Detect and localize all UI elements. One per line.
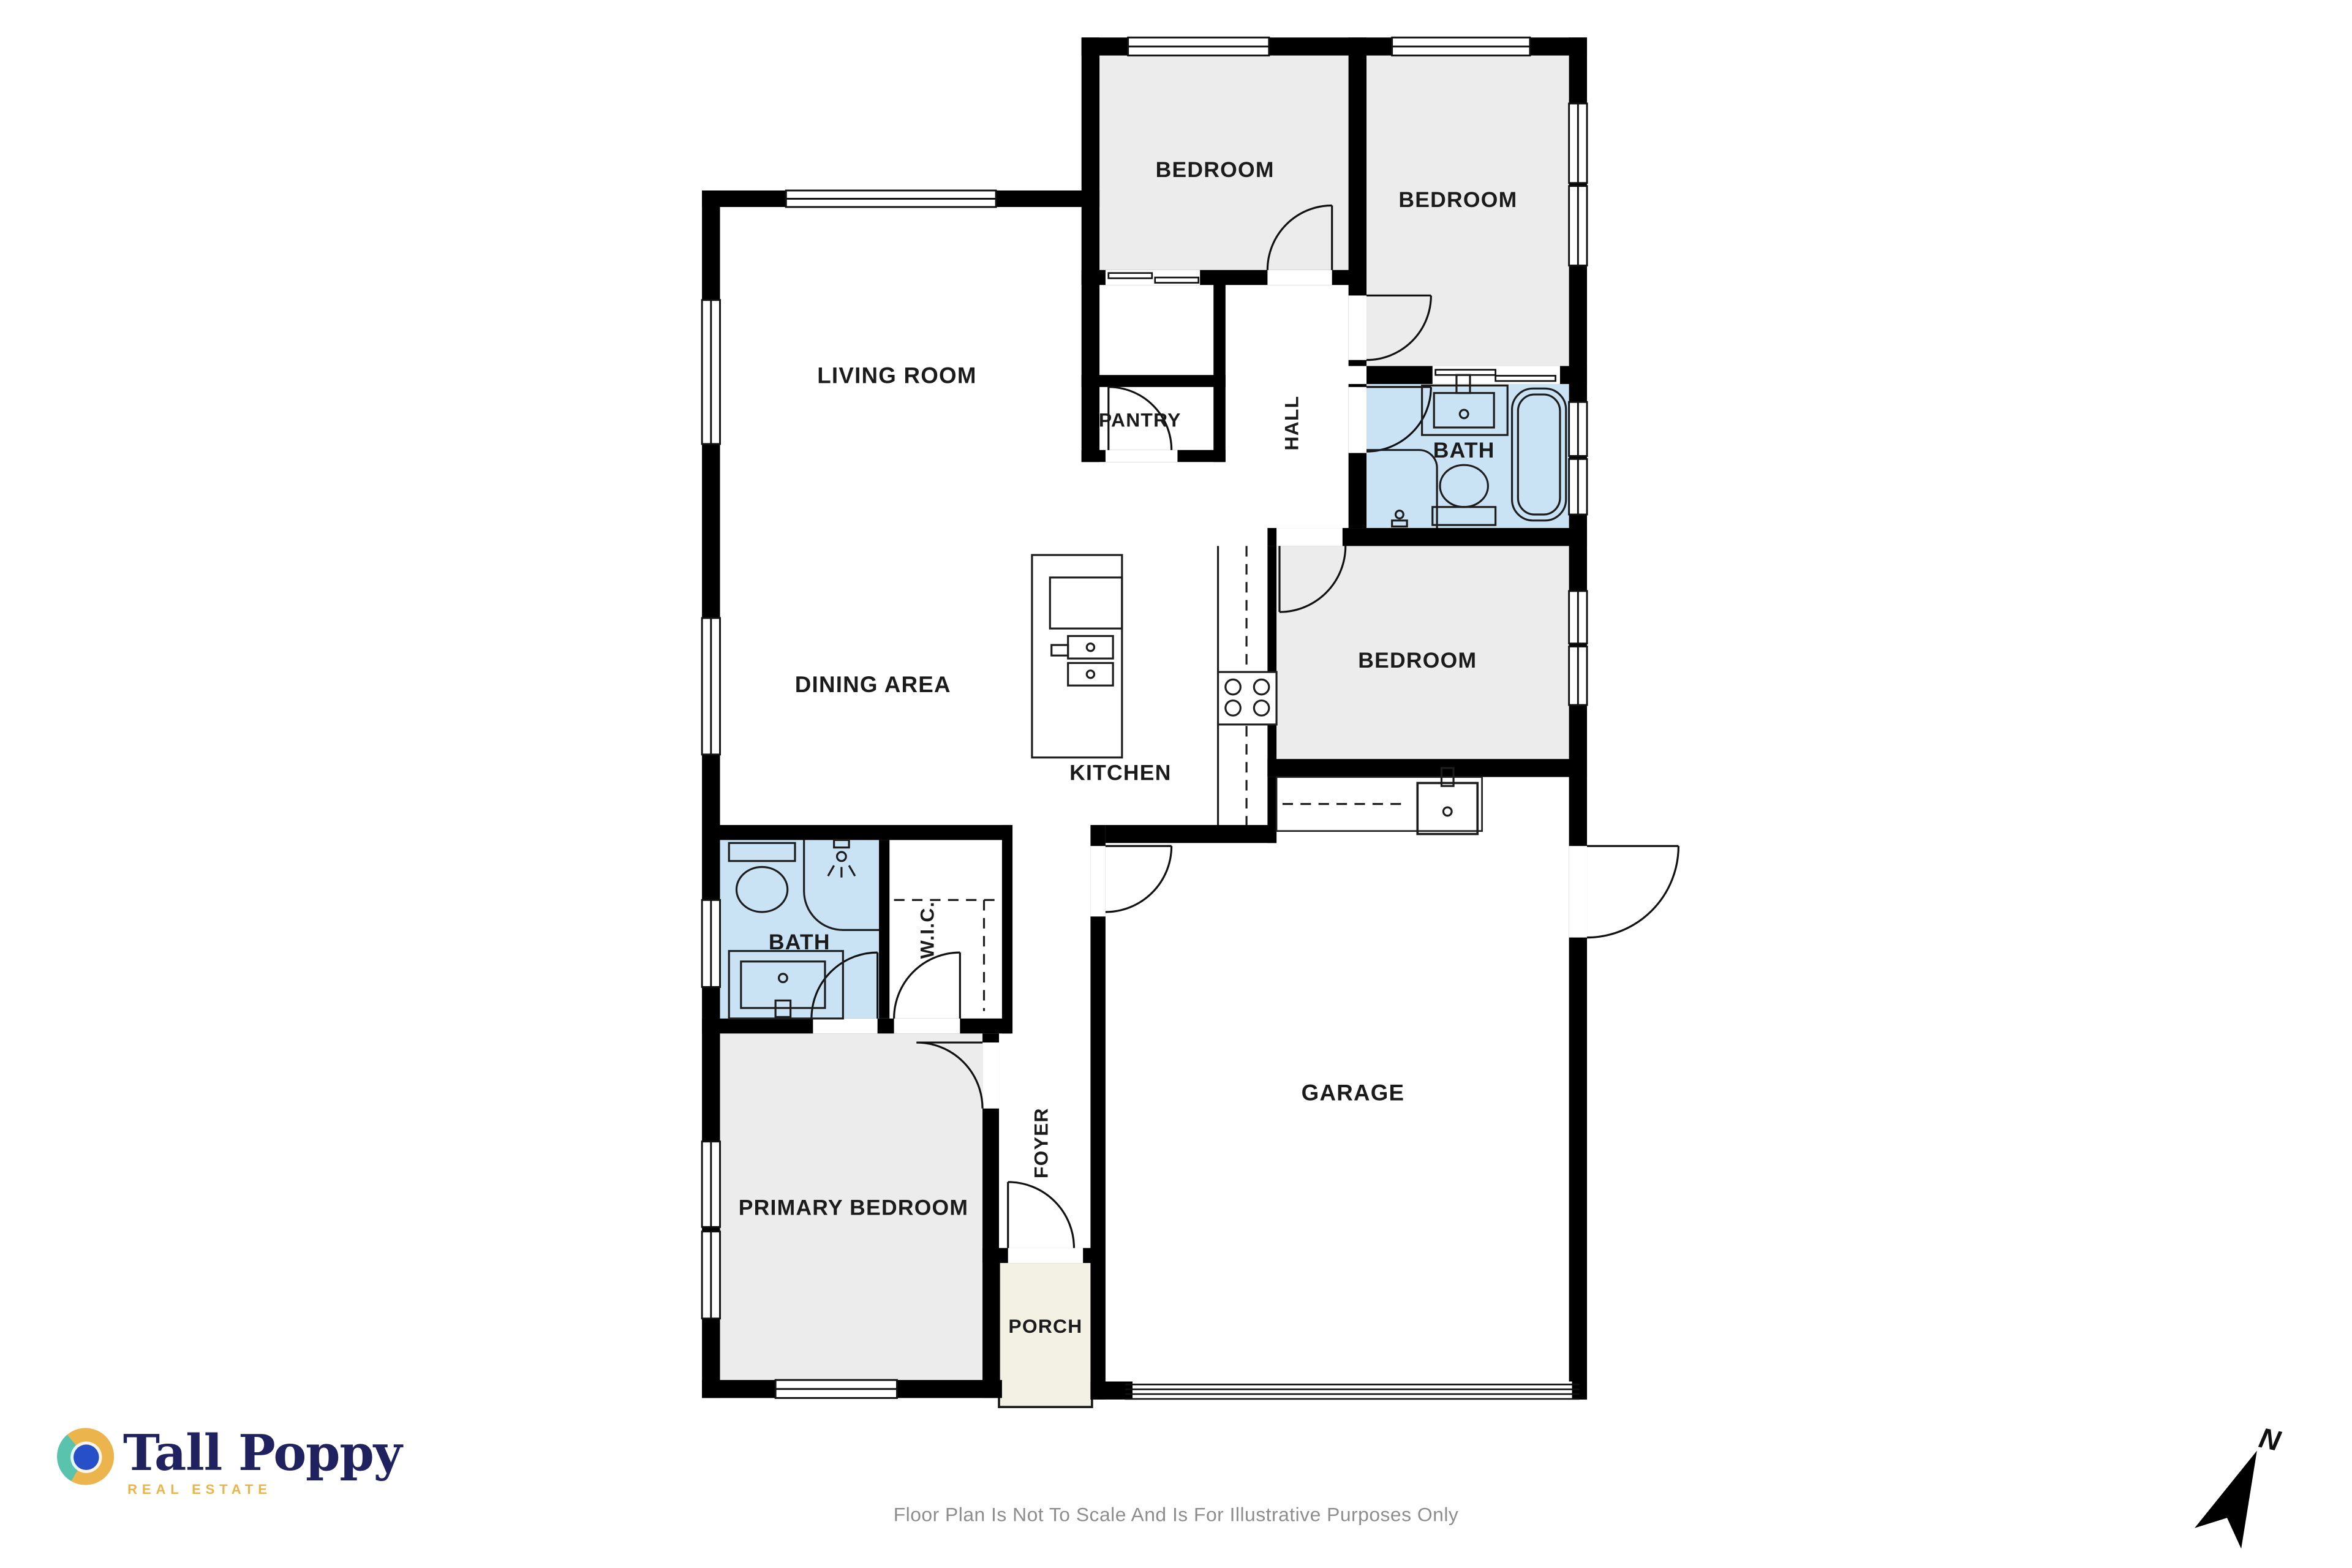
room-label-wic: W.I.C.	[916, 901, 938, 959]
tall-poppy-logo: Tall Poppy REAL ESTATE	[57, 1428, 401, 1496]
tall-poppy-logo-icon	[57, 1428, 114, 1485]
north-arrow-icon	[2172, 1407, 2337, 1563]
room-label-kitchen: KITCHEN	[1069, 762, 1171, 786]
north-compass: N	[2172, 1407, 2337, 1563]
opening-bedroom-middle-door	[1276, 528, 1343, 546]
room-label-porch: PORCH	[1008, 1315, 1082, 1338]
logo-center-dot-icon	[73, 1444, 99, 1469]
opening-bedroom2-door	[1349, 295, 1366, 360]
floor-plan-canvas: LIVING ROOM DINING AREA KITCHEN PANTRY H…	[0, 0, 2352, 1567]
logo-text-block: Tall Poppy REAL ESTATE	[123, 1428, 402, 1496]
bifold-door-panel	[1155, 277, 1199, 283]
window-dining-left	[702, 618, 720, 755]
bifold-door-panel	[1109, 273, 1152, 279]
room-label-bedroom-middle: BEDROOM	[1358, 649, 1477, 673]
opening-garage-foyer-door	[1090, 846, 1105, 916]
island-counter-icon	[1032, 555, 1122, 758]
door-garage-side	[1587, 846, 1678, 937]
window-bedroom2-top	[1392, 37, 1530, 55]
wall-closet-pantry-divider	[1082, 375, 1226, 387]
opening-front-door	[1008, 1248, 1083, 1263]
door-garage-foyer	[1106, 846, 1172, 912]
room-label-hall: HALL	[1280, 396, 1303, 451]
window-bedroom1-top	[1128, 37, 1269, 55]
sliding-door-panel	[1496, 375, 1556, 381]
wall-wic-foyer	[1002, 825, 1012, 1033]
window-bedroom-middle-right	[1569, 591, 1587, 705]
wall-kitchen-garage	[1106, 825, 1276, 843]
kitchen-island	[1032, 555, 1122, 758]
room-label-bedroom-top-left: BEDROOM	[1156, 159, 1275, 183]
room-label-dining: DINING AREA	[795, 673, 951, 698]
door-front	[1008, 1182, 1074, 1248]
window-living-top	[786, 190, 996, 207]
room-label-bedroom-top-right: BEDROOM	[1398, 189, 1517, 213]
window-living-left	[702, 300, 720, 444]
window-bath-left	[702, 900, 720, 987]
logo-tagline: REAL ESTATE	[127, 1482, 401, 1496]
opening-bath-primary-door	[813, 1019, 877, 1033]
opening-primary-door	[982, 1042, 999, 1109]
logo-wordmark: Tall Poppy	[123, 1428, 402, 1480]
opening-bath-hall-door	[1349, 387, 1366, 453]
room-label-bath-hall: BATH	[1433, 440, 1495, 464]
stove-icon	[1218, 672, 1277, 725]
wall-pantry-right	[1213, 279, 1226, 462]
room-label-living: LIVING ROOM	[817, 364, 976, 390]
room-label-foyer: FOYER	[1030, 1107, 1052, 1178]
floor-plan-page: LIVING ROOM DINING AREA KITCHEN PANTRY H…	[0, 0, 2352, 1568]
laundry-counter	[1276, 768, 1482, 834]
room-label-primary: PRIMARY BEDROOM	[739, 1197, 968, 1221]
wall-bedroom-wing-left	[1082, 37, 1099, 462]
wall-bath-wic-divider	[879, 840, 889, 1018]
window-primary-bottom	[775, 1380, 897, 1398]
wall-bedroom-middle-left	[1267, 546, 1276, 777]
room-label-pantry: PANTRY	[1099, 409, 1182, 431]
window-bath-hall-right	[1569, 402, 1587, 514]
wall-bedroom-middle-bottom	[1267, 759, 1587, 777]
opening-bedroom1-door	[1267, 270, 1332, 285]
wic-shelving	[894, 900, 997, 1011]
opening-wic-door	[894, 1019, 960, 1033]
door-wic	[894, 952, 960, 1019]
room-label-garage: GARAGE	[1302, 1080, 1405, 1106]
disclaimer-text: Floor Plan Is Not To Scale And Is For Il…	[0, 1503, 2352, 1526]
room-label-bath-primary: BATH	[769, 932, 831, 956]
wall-bath-wic-top	[720, 825, 1011, 840]
opening-pantry-door	[1106, 450, 1178, 462]
floor-plan-drawing	[0, 0, 2352, 1567]
opening-garage-side-door	[1569, 846, 1587, 937]
